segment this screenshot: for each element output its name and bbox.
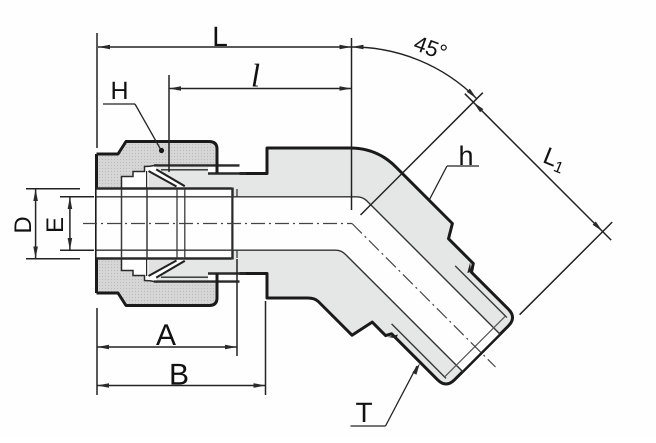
svg-text:T: T — [355, 397, 372, 428]
svg-text:B: B — [169, 359, 189, 392]
svg-text:E: E — [42, 217, 69, 233]
svg-text:l: l — [251, 59, 260, 95]
svg-text:A: A — [156, 319, 176, 352]
svg-text:h: h — [458, 141, 473, 171]
svg-text:H: H — [110, 77, 128, 105]
svg-text:L: L — [212, 21, 228, 52]
svg-text:D: D — [10, 216, 37, 233]
